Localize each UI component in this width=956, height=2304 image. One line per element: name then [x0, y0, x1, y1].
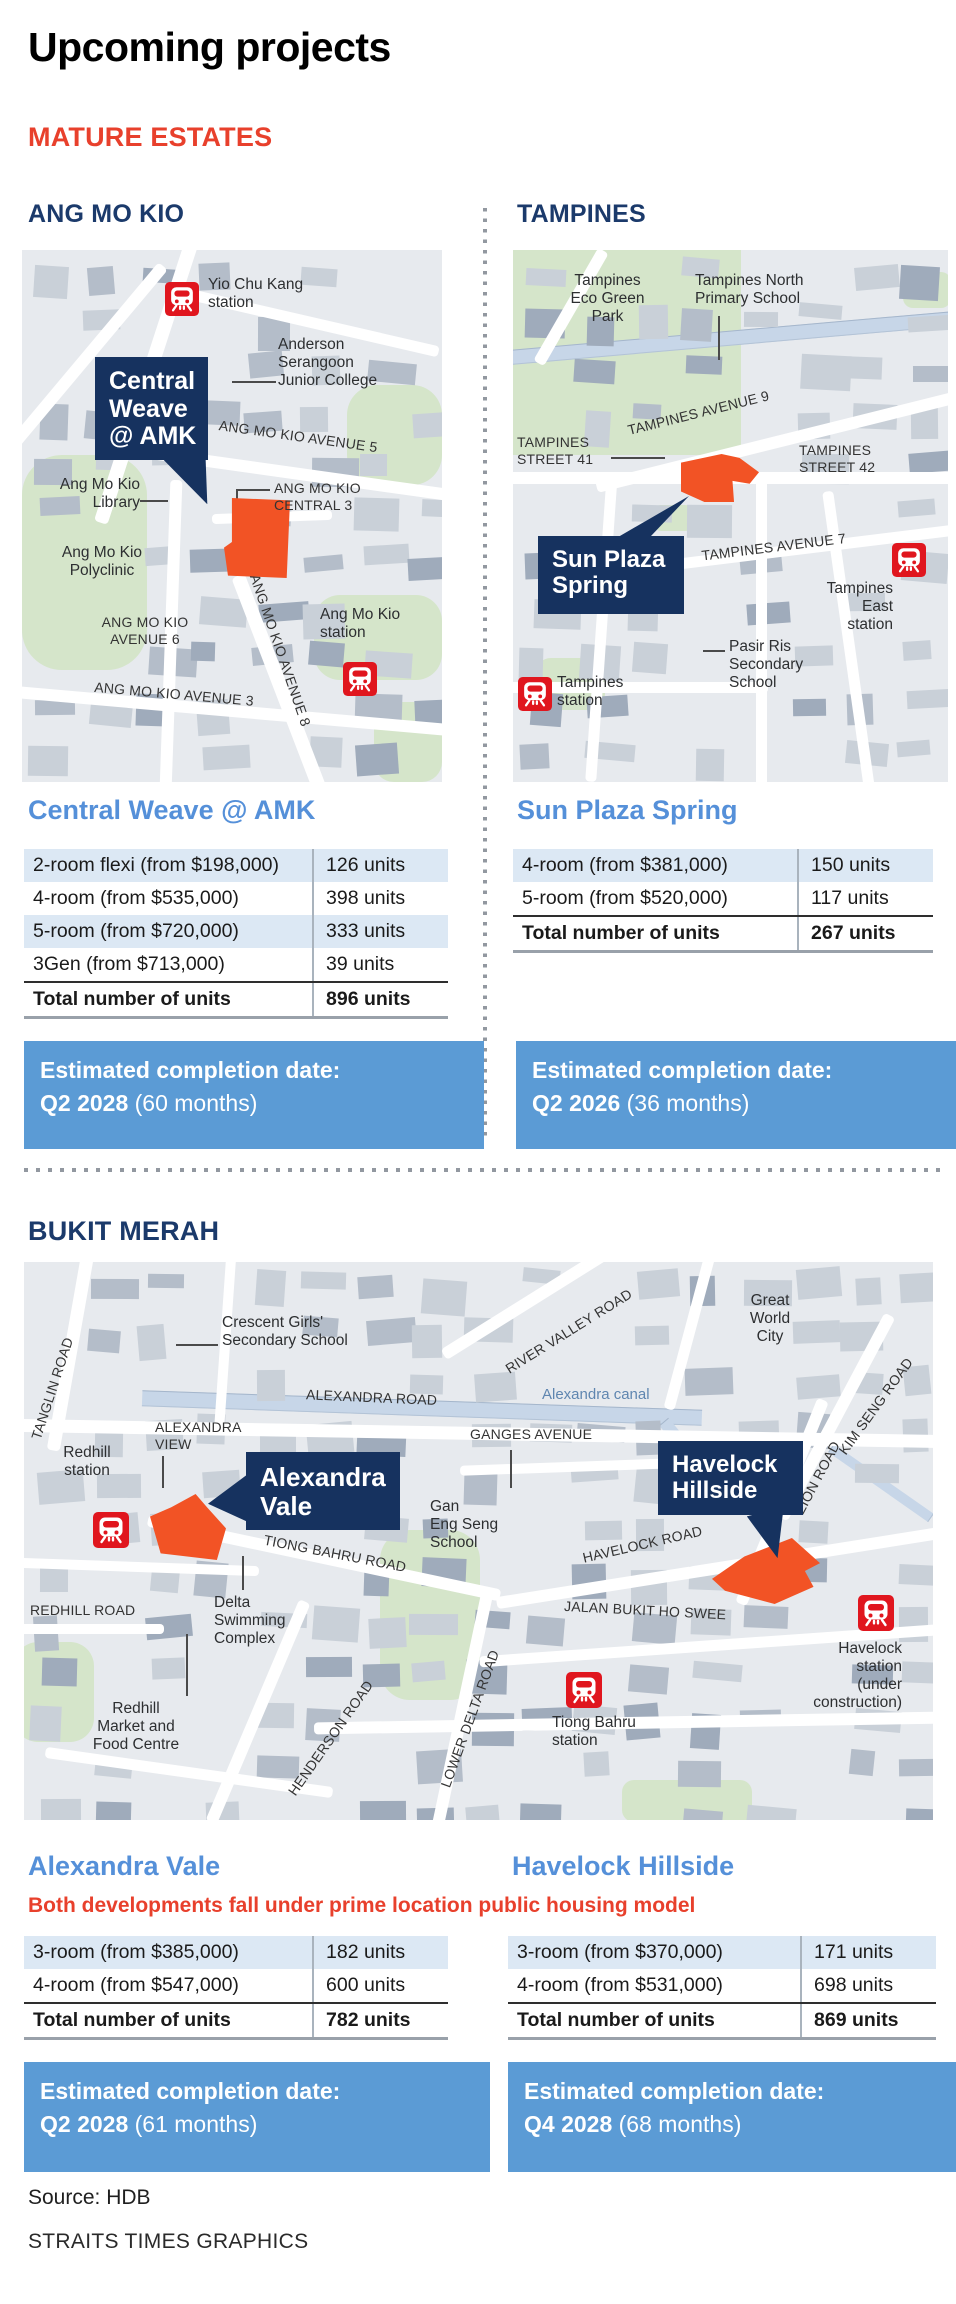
building-block — [364, 543, 410, 564]
canal-label: Alexandra canal — [542, 1386, 650, 1403]
building-block — [798, 1521, 828, 1545]
road — [585, 472, 618, 782]
table-row: 3-room (from $370,000)171 units — [508, 1936, 936, 1969]
mrt-station-icon — [566, 1672, 602, 1713]
building-block — [680, 308, 712, 342]
map-bukit-merah: TANGLIN ROADCrescent Girls' Secondary Sc… — [24, 1262, 933, 1820]
completion-months: (60 months) — [135, 1090, 258, 1116]
flat-type-cell: 5-room (from $520,000) — [513, 887, 797, 910]
completion-banner-alexandra-vale: Estimated completion date: Q2 2028 (61 m… — [24, 2062, 490, 2172]
building-block — [257, 1370, 286, 1401]
units-cell: 126 units — [312, 849, 448, 882]
flat-type-cell: 2-room flexi (from $198,000) — [24, 854, 312, 877]
building-block — [257, 1756, 299, 1779]
mrt-station-icon — [518, 677, 552, 716]
project-title-central-weave: Central Weave @ AMK — [28, 795, 315, 826]
building-block — [796, 1375, 841, 1401]
building-block — [254, 1269, 285, 1307]
map-place-label: Ang Mo Kio station — [320, 606, 400, 642]
total-units-cell: 782 units — [312, 2004, 448, 2037]
units-cell: 698 units — [800, 1969, 936, 2002]
table-total-row: Total number of units869 units — [508, 2002, 936, 2037]
label-pointer-line — [162, 1456, 164, 1488]
building-block — [308, 641, 344, 668]
units-cell: 182 units — [312, 1936, 448, 1969]
label-pointer-line — [242, 1556, 244, 1590]
table-row: 4-room (from $547,000)600 units — [24, 1969, 448, 2002]
building-block — [848, 1749, 874, 1776]
building-block — [91, 1279, 139, 1300]
map-place-label: Redhill station — [46, 1444, 128, 1480]
map-place-label: Delta Swimming Complex — [214, 1594, 285, 1648]
project-callout: Sun Plaza Spring — [538, 536, 684, 614]
building-block — [412, 1325, 443, 1358]
units-cell: 150 units — [797, 849, 933, 882]
mrt-station-icon — [858, 1595, 894, 1636]
estate-heading-ang-mo-kio: ANG MO KIO — [28, 200, 184, 229]
completion-date: Q2 2028 — [40, 1090, 128, 1116]
flat-type-cell: 4-room (from $535,000) — [24, 887, 312, 910]
map-place-label: Tampines Eco Green Park — [555, 272, 660, 326]
label-pointer-line — [140, 500, 168, 502]
label-pointer-line — [232, 381, 276, 383]
credit-text: STRAITS TIMES GRAPHICS — [28, 2230, 308, 2254]
building-block — [685, 355, 722, 374]
building-block — [634, 1326, 668, 1346]
map-place-label: Tampines station — [557, 674, 623, 710]
table-row: 4-room (from $535,000)398 units — [24, 882, 448, 915]
building-block — [202, 745, 250, 771]
road — [756, 478, 767, 782]
building-block — [96, 1801, 131, 1820]
building-block — [407, 557, 442, 581]
building-block — [300, 267, 337, 287]
total-units-cell: 896 units — [312, 983, 448, 1016]
units-table-sun-plaza-spring: 4-room (from $381,000)150 units5-room (f… — [513, 849, 933, 953]
road-label: ANG MO KIO CENTRAL 3 — [274, 480, 361, 513]
road-label: TAMPINES STREET 42 — [799, 442, 875, 475]
building-block — [409, 1614, 458, 1635]
map-place-label: Great World City — [734, 1292, 806, 1346]
building-block — [86, 266, 114, 296]
completion-banner-central-weave: Estimated completion date: Q2 2028 (60 m… — [24, 1041, 484, 1149]
building-block — [799, 302, 843, 320]
building-block — [301, 1271, 346, 1289]
completion-date: Q2 2028 — [40, 2111, 128, 2137]
map-place-label: Ang Mo Kio Library — [48, 476, 140, 512]
completion-label: Estimated completion date: — [40, 2075, 474, 2108]
building-block — [899, 1564, 933, 1586]
label-pointer-line — [703, 650, 725, 652]
flat-type-cell: 4-room (from $381,000) — [513, 854, 797, 877]
building-block — [632, 642, 669, 675]
building-block — [855, 1464, 899, 1484]
building-block — [357, 1275, 394, 1300]
building-block — [899, 265, 940, 301]
label-pointer-line — [510, 1450, 512, 1488]
project-title-havelock-hillside: Havelock Hillside — [512, 1851, 734, 1882]
map-place-label: Havelock station (under construction) — [772, 1640, 902, 1712]
prime-location-note: Both developments fall under prime locat… — [28, 1894, 695, 1918]
road-label: ALEXANDRA VIEW — [155, 1419, 242, 1452]
map-tampines: Tampines Eco Green ParkTampines North Pr… — [513, 250, 948, 782]
table-row: 4-room (from $531,000)698 units — [508, 1969, 936, 2002]
estate-heading-tampines: TAMPINES — [517, 200, 646, 229]
column-divider-dotted — [483, 208, 487, 1138]
completion-date: Q4 2028 — [524, 2111, 612, 2137]
building-block — [584, 1751, 611, 1776]
table-total-row: Total number of units896 units — [24, 981, 448, 1016]
label-pointer-line — [611, 457, 665, 459]
building-block — [902, 640, 931, 661]
map-place-label: Pasir Ris Secondary School — [729, 638, 803, 692]
building-block — [422, 499, 442, 518]
building-block — [746, 601, 790, 625]
units-table-havelock-hillside: 3-room (from $370,000)171 units4-room (f… — [508, 1936, 936, 2040]
map-place-label: Crescent Girls' Secondary School — [222, 1314, 348, 1350]
mrt-station-icon — [343, 662, 377, 701]
table-row: 5-room (from $720,000)333 units — [24, 915, 448, 948]
total-units-cell: 267 units — [797, 917, 933, 950]
completion-months: (61 months) — [135, 2111, 258, 2137]
label-pointer-line — [236, 489, 270, 491]
completion-banner-sun-plaza-spring: Estimated completion date: Q2 2026 (36 m… — [516, 1041, 956, 1149]
table-total-row: Total number of units267 units — [513, 915, 933, 950]
building-block — [355, 742, 399, 776]
map-place-label: Tampines North Primary School — [695, 272, 804, 308]
building-block — [87, 1329, 121, 1354]
building-block — [466, 1805, 500, 1820]
total-label-cell: Total number of units — [24, 2009, 312, 2032]
units-cell: 39 units — [312, 948, 448, 981]
building-block — [628, 1664, 669, 1694]
building-block — [573, 358, 615, 383]
table-row: 3-room (from $385,000)182 units — [24, 1936, 448, 1969]
map-place-label: Anderson Serangoon Junior College — [278, 336, 377, 390]
road-label: ANG MO KIO AVENUE 6 — [86, 614, 204, 647]
map-place-label: Tampines East station — [805, 580, 893, 634]
building-block — [585, 1521, 623, 1540]
road — [24, 1624, 164, 1634]
table-row: 2-room flexi (from $198,000)126 units — [24, 849, 448, 882]
building-block — [30, 1706, 62, 1742]
building-block — [148, 1273, 184, 1287]
project-callout: Central Weave @ AMK — [95, 357, 208, 460]
map-place-label: Redhill Market and Food Centre — [76, 1700, 196, 1754]
completion-date: Q2 2026 — [532, 1090, 620, 1116]
building-block — [848, 356, 882, 379]
table-row: 4-room (from $381,000)150 units — [513, 849, 933, 882]
building-block — [412, 412, 442, 439]
building-block — [526, 1616, 565, 1647]
building-block — [696, 749, 724, 782]
total-label-cell: Total number of units — [24, 988, 312, 1011]
building-block — [897, 740, 931, 758]
units-cell: 117 units — [797, 882, 933, 915]
building-block — [744, 312, 778, 327]
building-block — [906, 689, 948, 709]
building-block — [519, 1803, 561, 1820]
building-block — [854, 264, 899, 291]
flat-type-cell: 4-room (from $531,000) — [508, 1974, 800, 1997]
label-pointer-line — [186, 1634, 188, 1696]
category-label: MATURE ESTATES — [28, 122, 272, 153]
completion-banner-havelock-hillside: Estimated completion date: Q4 2028 (68 m… — [508, 2062, 956, 2172]
building-block — [898, 498, 936, 517]
units-table-alexandra-vale: 3-room (from $385,000)182 units4-room (f… — [24, 1936, 448, 2040]
project-site-polygon — [681, 454, 759, 502]
page-title: Upcoming projects — [28, 24, 391, 71]
building-block — [687, 505, 733, 538]
label-pointer-line — [176, 1344, 218, 1346]
building-block — [306, 1657, 352, 1677]
road-label: JALAN BUKIT HO SWEE — [564, 1598, 800, 1627]
building-block — [678, 1761, 721, 1787]
building-block — [311, 1605, 359, 1643]
section-divider-dotted — [24, 1168, 948, 1172]
completion-label: Estimated completion date: — [532, 1054, 956, 1087]
units-cell: 398 units — [312, 882, 448, 915]
units-cell: 600 units — [312, 1969, 448, 2002]
building-block — [41, 1799, 81, 1820]
flat-type-cell: 5-room (from $720,000) — [24, 920, 312, 943]
total-label-cell: Total number of units — [508, 2009, 800, 2032]
table-total-row: Total number of units782 units — [24, 2002, 448, 2037]
building-block — [746, 1805, 797, 1820]
building-block — [899, 1272, 933, 1303]
building-block — [899, 1758, 933, 1776]
building-block — [42, 1657, 77, 1686]
estate-heading-bukit-merah: BUKIT MERAH — [28, 1216, 219, 1247]
building-block — [908, 450, 948, 473]
completion-months: (68 months) — [619, 2111, 742, 2137]
building-block — [793, 699, 826, 717]
building-block — [855, 1277, 881, 1305]
units-cell: 333 units — [312, 915, 448, 948]
completion-months: (36 months) — [627, 1090, 750, 1116]
building-block — [908, 314, 948, 332]
total-label-cell: Total number of units — [513, 922, 797, 945]
table-row: 5-room (from $520,000)117 units — [513, 882, 933, 915]
building-block — [906, 1808, 933, 1820]
map-place-label: Ang Mo Kio Polyclinic — [46, 544, 158, 580]
source-text: Source: HDB — [28, 2186, 151, 2210]
road-label: REDHILL ROAD — [30, 1602, 180, 1619]
flat-type-cell: 3-room (from $370,000) — [508, 1941, 800, 1964]
building-block — [913, 366, 948, 382]
map-ang-mo-kio: Yio Chu Kang stationAnderson Serangoon J… — [22, 250, 442, 782]
building-block — [303, 555, 343, 573]
road-label: GANGES AVENUE — [470, 1426, 630, 1443]
building-block — [137, 1324, 167, 1361]
completion-label: Estimated completion date: — [40, 1054, 468, 1087]
building-block — [360, 1801, 406, 1820]
building-block — [33, 264, 69, 298]
project-callout: Havelock Hillside — [658, 1441, 803, 1515]
building-block — [366, 1317, 417, 1346]
building-block — [421, 1279, 467, 1317]
units-cell: 171 units — [800, 1936, 936, 1969]
label-pointer-line — [718, 316, 720, 360]
units-table-central-weave: 2-room flexi (from $198,000)126 units4-r… — [24, 849, 448, 1019]
mrt-station-icon — [892, 543, 926, 582]
project-title-sun-plaza-spring: Sun Plaza Spring — [517, 795, 738, 826]
building-block — [902, 1661, 933, 1683]
flat-type-cell: 3-room (from $385,000) — [24, 1941, 312, 1964]
building-block — [685, 1367, 734, 1396]
building-block — [692, 1661, 743, 1683]
project-title-alexandra-vale: Alexandra Vale — [28, 1851, 220, 1882]
building-block — [28, 746, 68, 777]
map-place-label: Yio Chu Kang station — [208, 276, 303, 312]
project-callout: Alexandra Vale — [246, 1452, 400, 1530]
building-block — [519, 744, 549, 770]
flat-type-cell: 4-room (from $547,000) — [24, 1974, 312, 1997]
building-block — [40, 1568, 68, 1592]
flat-type-cell: 3Gen (from $713,000) — [24, 953, 312, 976]
total-units-cell: 869 units — [800, 2004, 936, 2037]
map-place-label: Tiong Bahru station — [552, 1714, 636, 1750]
completion-label: Estimated completion date: — [524, 2075, 956, 2108]
table-row: 3Gen (from $713,000)39 units — [24, 948, 448, 981]
building-block — [151, 1658, 185, 1681]
road-label: TAMPINES STREET 41 — [517, 434, 593, 467]
mrt-station-icon — [93, 1512, 129, 1553]
mrt-station-icon — [165, 282, 199, 321]
building-block — [412, 1661, 446, 1683]
building-block — [359, 454, 386, 477]
map-place-label: Gan Eng Seng School — [430, 1498, 498, 1552]
